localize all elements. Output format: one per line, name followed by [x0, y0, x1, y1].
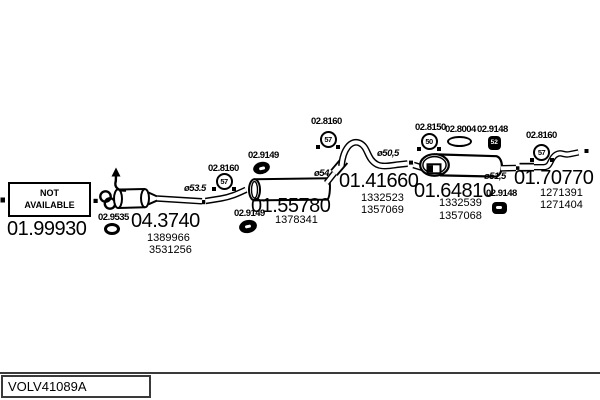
dim-label-rear-outlet: ø51,5 — [484, 172, 506, 182]
not-available-line2: AVAILABLE — [24, 200, 74, 212]
part-code-front-pipe[interactable]: 01.99930 — [7, 219, 86, 240]
oval-gasket-icon — [447, 136, 472, 147]
clamp-icon-mid: 57 — [320, 131, 337, 148]
clamp-icon-tail: 57 — [533, 144, 550, 161]
clamp-size-rear: 50 — [421, 133, 438, 150]
fitting-code-clamp-mid[interactable]: 02.8160 — [311, 117, 342, 127]
hanger-icon-rear-top: 52 — [488, 136, 502, 150]
part-code-conn-pipe[interactable]: 01.41660 — [339, 171, 418, 192]
oring-gasket-icon — [104, 223, 120, 235]
oe-number-catalyst-2: 3531256 — [149, 245, 192, 257]
flow-direction-arrow-icon — [115, 176, 126, 191]
oe-number-rear-muffler-2: 1357068 — [439, 211, 482, 223]
oe-number-conn-pipe-2: 1357069 — [361, 205, 404, 217]
intermediate-pipe-art — [206, 190, 247, 201]
part-code-tail-pipe[interactable]: 01.70770 — [514, 168, 593, 189]
flow-direction-arrowhead-icon — [112, 168, 121, 177]
fitting-code-gasket-rear[interactable]: 02.8004 — [445, 125, 476, 135]
diagram-code-plate: VOLV41089A — [1, 375, 151, 398]
fitting-code-hanger-rear-bottom[interactable]: 02.9148 — [486, 189, 517, 199]
oe-number-tail-pipe-1: 1271391 — [540, 188, 583, 200]
oe-number-catalyst-1: 1389966 — [147, 233, 190, 245]
dim-label-conn-pipe: ø50,5 — [377, 149, 399, 159]
not-available-line1: NOT — [40, 188, 59, 200]
fitting-code-clamp-tail[interactable]: 02.8160 — [526, 131, 557, 141]
clamp-size-tail: 57 — [533, 144, 550, 161]
clamp-size-mid: 57 — [320, 131, 337, 148]
clamp-icon-rear: 50 — [421, 133, 438, 150]
not-available-box: NOT AVAILABLE — [8, 182, 91, 217]
oe-number-conn-pipe-1: 1332523 — [361, 193, 404, 205]
fitting-code-hanger-rear-top[interactable]: 02.9148 — [477, 125, 508, 135]
dim-label-front-pipe: ø53.5 — [184, 184, 206, 194]
part-code-catalyst[interactable]: 04.3740 — [131, 211, 200, 232]
oe-number-tail-pipe-2: 1271404 — [540, 200, 583, 212]
diagram-code: VOLV41089A — [8, 379, 87, 394]
exhaust-diagram-canvas: NOT AVAILABLE 01.99930 04.3740 01.55780 … — [0, 0, 600, 400]
clamp-icon-front: 57 — [216, 173, 233, 190]
oe-number-rear-muffler-1: 1332539 — [439, 198, 482, 210]
footer-divider — [0, 372, 600, 374]
fitting-code-hanger-mid-bottom[interactable]: 02.9149 — [234, 209, 265, 219]
clamp-size-front: 57 — [216, 173, 233, 190]
hanger-icon-rear-bottom — [492, 202, 507, 214]
oe-number-mid-muffler-1: 1378341 — [275, 215, 318, 227]
fitting-code-oring[interactable]: 02.9535 — [98, 213, 129, 223]
dim-label-mid-outlet: ø54 — [314, 169, 329, 179]
fitting-code-clamp-rear[interactable]: 02.8150 — [415, 123, 446, 133]
fitting-code-hanger-mid-top[interactable]: 02.9149 — [248, 151, 279, 161]
